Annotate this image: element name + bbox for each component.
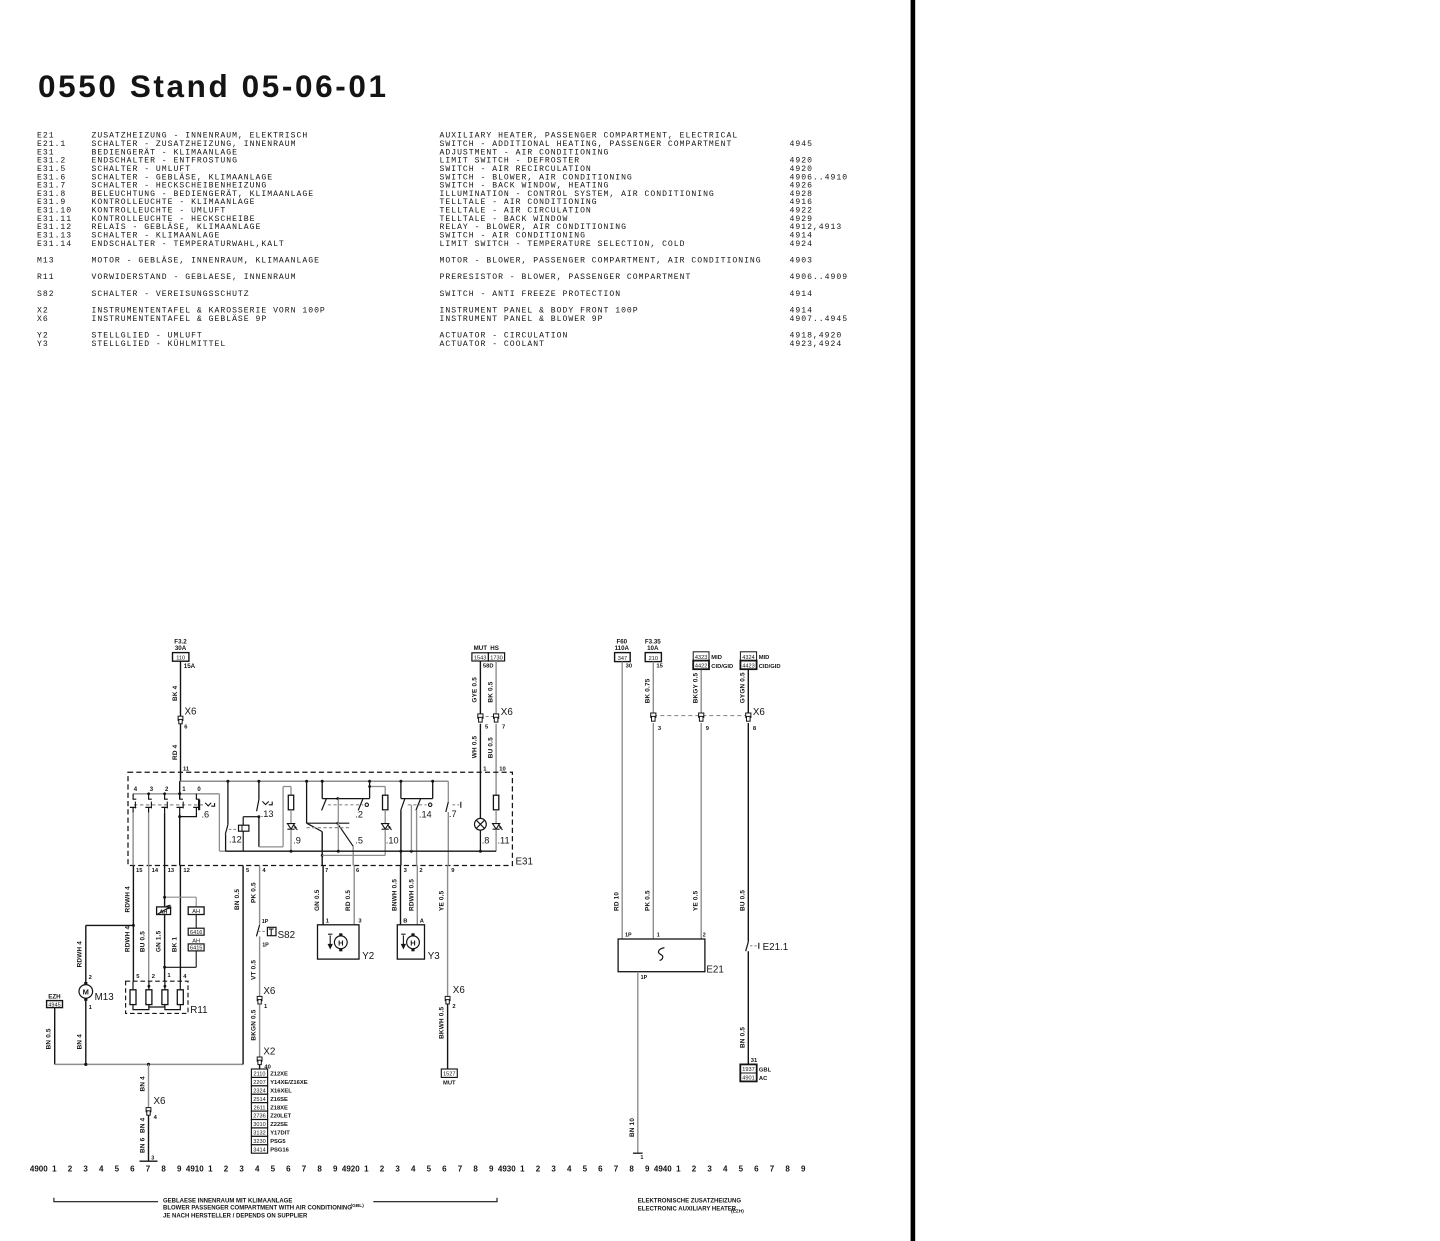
svg-text:.2: .2 [355, 809, 363, 819]
svg-text:11: 11 [183, 766, 190, 772]
svg-text:WH 0.5: WH 0.5 [472, 735, 479, 758]
svg-text:RDWH 4: RDWH 4 [76, 941, 83, 968]
svg-text:EZH: EZH [48, 993, 61, 1000]
svg-text:BK 0.5: BK 0.5 [487, 681, 494, 702]
svg-text:RDWH 4: RDWH 4 [124, 925, 131, 952]
svg-text:.14: .14 [419, 810, 432, 820]
svg-text:PK 0.5: PK 0.5 [645, 890, 652, 911]
svg-text:6415: 6415 [190, 946, 202, 952]
svg-text:30: 30 [626, 663, 632, 669]
svg-text:BK 0.75: BK 0.75 [645, 678, 652, 703]
svg-text:MID: MID [711, 655, 722, 661]
svg-text:2: 2 [703, 933, 706, 939]
svg-text:1543: 1543 [474, 656, 486, 662]
svg-text:30A: 30A [175, 645, 187, 652]
svg-text:X6: X6 [753, 707, 766, 718]
svg-text:BKGN 0.5: BKGN 0.5 [251, 1009, 258, 1040]
svg-text:15A: 15A [184, 663, 196, 670]
svg-text:12: 12 [183, 868, 189, 874]
svg-text:M13: M13 [95, 992, 115, 1003]
svg-text:1730: 1730 [490, 656, 502, 662]
svg-text:AH: AH [192, 909, 200, 915]
svg-text:CID/GID: CID/GID [711, 664, 733, 670]
svg-text:.9: .9 [293, 836, 301, 846]
svg-text:4423: 4423 [742, 664, 754, 670]
svg-text:BU 0.5: BU 0.5 [487, 737, 494, 758]
svg-text:RD 4: RD 4 [172, 744, 179, 760]
svg-text:Y17DIT: Y17DIT [270, 1131, 290, 1137]
svg-text:BKGY 0.5: BKGY 0.5 [692, 672, 699, 703]
svg-text:31: 31 [751, 1058, 758, 1064]
svg-text:RD 0.5: RD 0.5 [345, 890, 352, 911]
svg-text:X6: X6 [263, 986, 276, 997]
svg-text:X6: X6 [185, 707, 198, 718]
svg-text:E31: E31 [516, 857, 533, 868]
svg-text:HS: HS [490, 645, 499, 652]
svg-text:BNWH 0.5: BNWH 0.5 [392, 879, 399, 911]
svg-text:H: H [410, 939, 415, 948]
svg-text:10: 10 [499, 766, 505, 772]
svg-text:ELEKTRONISCHE ZUSATZHEIZUNG: ELEKTRONISCHE ZUSATZHEIZUNG [638, 1198, 742, 1204]
svg-text:YE 0.5: YE 0.5 [439, 890, 446, 911]
svg-text:4422: 4422 [695, 664, 707, 670]
svg-text:.5: .5 [355, 836, 363, 846]
svg-text:GN 0.5: GN 0.5 [314, 889, 321, 911]
svg-text:BU 0.5: BU 0.5 [140, 931, 147, 952]
svg-text:3230: 3230 [253, 1139, 265, 1145]
svg-text:Y3: Y3 [428, 951, 441, 962]
svg-text:X16XEL: X16XEL [270, 1088, 292, 1094]
svg-text:3010: 3010 [253, 1122, 265, 1128]
svg-text:BK 4: BK 4 [172, 685, 179, 701]
svg-text:BN 4: BN 4 [140, 1076, 147, 1092]
svg-text:.10: .10 [386, 836, 399, 846]
svg-text:1P: 1P [262, 919, 269, 925]
svg-text:2207: 2207 [253, 1080, 265, 1086]
svg-text:2: 2 [452, 1004, 455, 1010]
svg-text:BN 10: BN 10 [629, 1118, 636, 1137]
svg-text:BN 0.5: BN 0.5 [234, 889, 241, 910]
svg-text:GN 1.5: GN 1.5 [156, 930, 163, 952]
svg-text:15: 15 [656, 663, 663, 669]
svg-text:S82: S82 [278, 930, 295, 941]
svg-text:AH: AH [160, 909, 168, 915]
svg-text:GYGN 0.5: GYGN 0.5 [740, 672, 747, 703]
svg-text:BN 4: BN 4 [140, 1117, 147, 1133]
svg-text:MUT: MUT [474, 645, 488, 652]
svg-text:X6: X6 [453, 985, 466, 996]
svg-text:2110: 2110 [253, 1072, 265, 1078]
svg-text:110A: 110A [615, 645, 630, 652]
svg-text:4945: 4945 [48, 1002, 60, 1008]
svg-text:JE NACH HERSTELLER / DEPENDS O: JE NACH HERSTELLER / DEPENDS ON SUPPLIER [163, 1214, 308, 1220]
svg-text:.12: .12 [229, 835, 242, 845]
svg-text:AC: AC [759, 1076, 768, 1082]
svg-text:.6: .6 [202, 810, 210, 820]
svg-text:BN 6: BN 6 [140, 1137, 147, 1153]
svg-text:BN 0.5: BN 0.5 [45, 1028, 52, 1049]
svg-text:Z18XE: Z18XE [270, 1105, 288, 1111]
svg-text:E21: E21 [706, 965, 723, 976]
svg-text:X6: X6 [154, 1096, 167, 1107]
svg-text:1P: 1P [625, 933, 632, 939]
svg-text:13: 13 [168, 868, 175, 874]
svg-text:PSG5: PSG5 [270, 1139, 286, 1145]
svg-text:Y14XE/Z16XE: Y14XE/Z16XE [270, 1080, 308, 1086]
svg-text:7: 7 [502, 725, 505, 731]
svg-text:PSG16: PSG16 [270, 1147, 289, 1153]
svg-text:Z12XE: Z12XE [270, 1072, 288, 1078]
svg-text:347: 347 [618, 656, 627, 662]
svg-text:3132: 3132 [253, 1131, 265, 1137]
svg-text:4901: 4901 [742, 1076, 754, 1082]
svg-text:RD 10: RD 10 [613, 892, 620, 911]
svg-text:Z16SE: Z16SE [270, 1097, 288, 1103]
svg-text:1P: 1P [641, 975, 648, 981]
svg-text:6416: 6416 [190, 930, 202, 936]
svg-text:2324: 2324 [253, 1088, 265, 1094]
svg-text:2514: 2514 [253, 1097, 265, 1103]
svg-text:M: M [83, 988, 89, 997]
svg-text:BN 0.5: BN 0.5 [739, 1027, 746, 1048]
svg-text:210: 210 [649, 656, 658, 662]
svg-text:2736: 2736 [253, 1114, 265, 1120]
svg-text:Y2: Y2 [362, 951, 374, 962]
svg-text:GBL: GBL [759, 1067, 772, 1073]
svg-text:CID/GID: CID/GID [759, 664, 781, 670]
svg-text:PK 0.5: PK 0.5 [251, 882, 258, 903]
svg-text:X6: X6 [501, 707, 514, 718]
svg-text:RDWH 4: RDWH 4 [124, 886, 131, 913]
svg-text:0550 Stand 05-06-01: 0550 Stand 05-06-01 [38, 68, 389, 104]
svg-text:2: 2 [152, 974, 155, 980]
svg-text:BLOWER PASSENGER COMPARTMENT W: BLOWER PASSENGER COMPARTMENT WITH AIR CO… [163, 1205, 352, 1211]
svg-text:1: 1 [640, 1155, 643, 1161]
svg-text:BKWH 0.5: BKWH 0.5 [439, 1007, 446, 1039]
svg-text:.7: .7 [449, 809, 457, 819]
svg-text:GEBLAESE INNENRAUM MIT KLIMAAN: GEBLAESE INNENRAUM MIT KLIMAANLAGE [163, 1198, 292, 1204]
svg-text:BN 4: BN 4 [76, 1034, 83, 1050]
svg-text:X2: X2 [263, 1046, 275, 1057]
svg-text:2611: 2611 [253, 1105, 265, 1111]
svg-text:15: 15 [136, 868, 143, 874]
svg-text:Z20LET: Z20LET [270, 1114, 291, 1120]
svg-text:1: 1 [657, 933, 660, 939]
svg-text:MID: MID [759, 655, 770, 661]
svg-text:.11: .11 [498, 836, 510, 846]
svg-text:.8: .8 [482, 836, 490, 846]
svg-text:2: 2 [89, 975, 92, 981]
svg-text:7: 7 [325, 868, 328, 874]
svg-text:1P: 1P [262, 943, 269, 949]
svg-text:1937: 1937 [742, 1067, 754, 1073]
svg-text:BU 0.5: BU 0.5 [740, 890, 747, 911]
svg-text:GYE 0.5: GYE 0.5 [472, 677, 479, 703]
svg-text:MUT: MUT [443, 1081, 456, 1087]
svg-text:H: H [338, 939, 343, 948]
svg-text:(EZH): (EZH) [731, 1208, 744, 1214]
svg-text:VT 0.5: VT 0.5 [251, 960, 258, 980]
svg-text:2: 2 [419, 868, 422, 874]
svg-text:BK 1: BK 1 [171, 936, 178, 952]
svg-text:14: 14 [152, 868, 159, 874]
svg-text:B: B [403, 919, 407, 925]
svg-text:E21.1: E21.1 [763, 942, 789, 953]
svg-text:(GBL): (GBL) [351, 1203, 365, 1209]
svg-text:YE 0.5: YE 0.5 [692, 890, 699, 911]
svg-text:10A: 10A [647, 645, 659, 652]
svg-text:R11: R11 [190, 1005, 207, 1016]
svg-text:RDWH 0.5: RDWH 0.5 [408, 879, 415, 911]
svg-text:3414: 3414 [253, 1147, 265, 1153]
svg-text:.13: .13 [261, 809, 274, 819]
svg-text:ELECTRONIC AUXILIARY HEATER: ELECTRONIC AUXILIARY HEATER [638, 1206, 737, 1212]
svg-text:Z22SE: Z22SE [270, 1122, 288, 1128]
svg-text:58D: 58D [483, 663, 494, 669]
svg-text:1527: 1527 [443, 1072, 455, 1078]
svg-text:110: 110 [176, 656, 185, 662]
